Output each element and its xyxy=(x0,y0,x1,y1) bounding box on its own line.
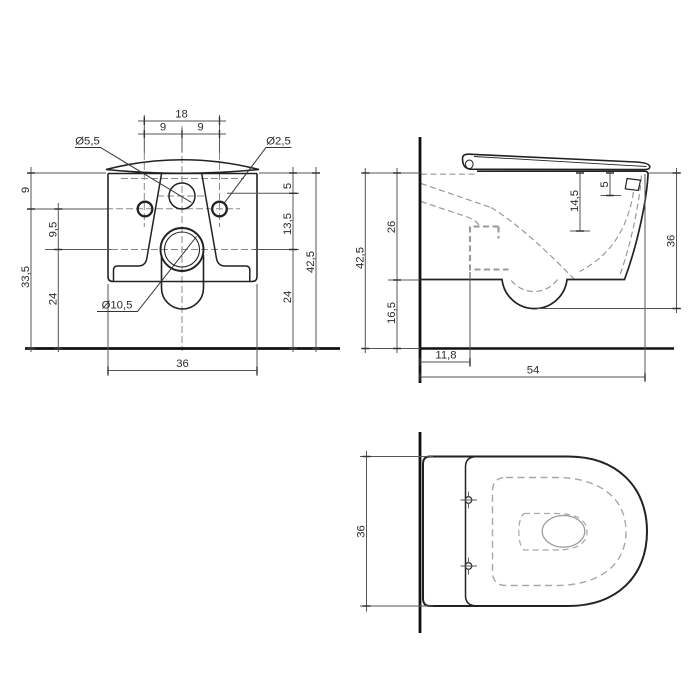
dim-front-width-body: 36 xyxy=(176,358,189,370)
top-inner-rim-dashed xyxy=(493,478,627,586)
dim-front-height-inlet-outlet: 13,5 xyxy=(282,213,294,235)
side-outlet-zone-box xyxy=(470,227,509,270)
dim-front-hole-spacing-total: 18 xyxy=(175,109,188,121)
dim-side-depth-rim-inner: 14,5 xyxy=(569,190,581,212)
dim-front-hole-spacing-left: 9 xyxy=(160,122,166,134)
front-view: 18 9 9 Ø5,5 Ø2,5 Ø10,5 9 33,5 9,5 24 5 1… xyxy=(20,109,340,377)
dim-side-depth-total: 54 xyxy=(527,365,540,377)
dim-front-height-total: 42,5 xyxy=(305,251,317,273)
front-dimension-lines xyxy=(27,115,320,376)
top-seat-back-edge xyxy=(466,457,476,606)
top-hinge-bolt-crosshairs xyxy=(461,492,478,575)
dim-front-hole-spacing-right: 9 xyxy=(197,122,203,134)
top-view: 36 xyxy=(356,432,648,633)
top-body-outline xyxy=(423,457,647,607)
dim-side-offset-outlet: 11,8 xyxy=(435,350,456,362)
dim-front-dia-outlet: Ø10,5 xyxy=(102,300,133,312)
side-view: 42,5 26 16,5 14,5 5 36 11,8 54 xyxy=(354,137,681,383)
dim-front-height-outlet-floor-right: 24 xyxy=(282,291,294,304)
dim-front-dia-fixing: Ø2,5 xyxy=(266,136,291,148)
dim-front-height-fixing-outlet: 9,5 xyxy=(47,222,59,238)
dim-side-height-below-bowl: 16,5 xyxy=(386,302,398,324)
side-dimension-lines xyxy=(362,168,681,382)
dim-front-height-top-fixing: 9 xyxy=(20,187,32,193)
dim-front-height-fixing-floor: 33,5 xyxy=(20,266,32,288)
dim-front-height-top-inlet: 5 xyxy=(282,183,294,189)
dim-side-depth-hinge-hole: 5 xyxy=(599,181,611,187)
dim-top-width-body: 36 xyxy=(356,525,368,538)
top-drain-ellipse xyxy=(542,516,585,548)
side-dimension-ticks xyxy=(361,173,680,381)
side-hidden-lines xyxy=(421,174,642,291)
technical-drawing-page: 18 9 9 Ø5,5 Ø2,5 Ø10,5 9 33,5 9,5 24 5 1… xyxy=(0,0,700,700)
dim-side-height-bowl: 26 xyxy=(386,221,398,234)
side-seat-outline xyxy=(463,154,650,169)
side-bowl-outline xyxy=(422,171,649,308)
dim-side-height-front: 36 xyxy=(666,235,678,248)
dim-front-dia-inlet: Ø5,5 xyxy=(75,136,100,148)
dim-side-height-total: 42,5 xyxy=(354,247,366,269)
wall-hung-toilet-technical-drawing: 18 9 9 Ø5,5 Ø2,5 Ø10,5 9 33,5 9,5 24 5 1… xyxy=(0,0,700,700)
side-seat-hinge xyxy=(466,160,474,169)
side-fixing-hole xyxy=(625,179,640,191)
dim-front-height-outlet-floor-left: 24 xyxy=(47,293,59,306)
front-dimension-ticks xyxy=(27,117,320,375)
